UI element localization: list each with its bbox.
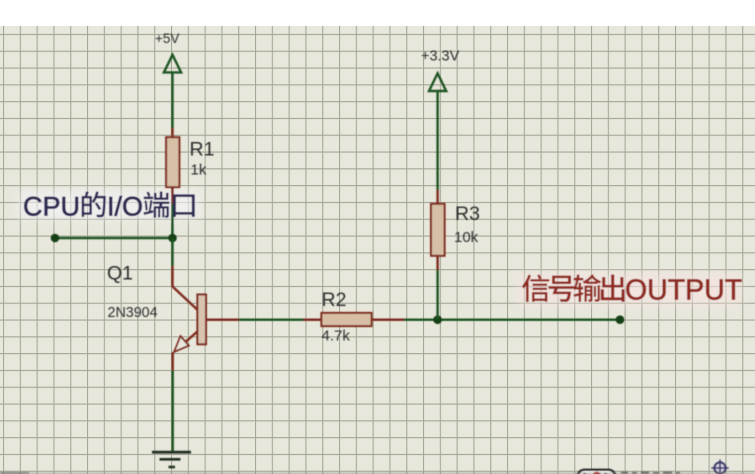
svg-text:R3: R3 (455, 203, 480, 225)
svg-text:+5V: +5V (155, 31, 179, 46)
svg-text:+3.3V: +3.3V (421, 49, 460, 65)
svg-text:I/O: I/O (107, 191, 143, 221)
svg-text:OUTPUT: OUTPUT (625, 274, 742, 306)
svg-text:CPU: CPU (23, 191, 80, 221)
svg-text:Q1: Q1 (107, 263, 133, 285)
svg-text:1k: 1k (191, 162, 207, 179)
svg-text:R1: R1 (190, 139, 215, 161)
svg-text:10k: 10k (454, 229, 479, 246)
svg-text:2N3904: 2N3904 (108, 305, 158, 321)
svg-text:4.7k: 4.7k (322, 327, 351, 344)
svg-text:R2: R2 (322, 289, 347, 311)
